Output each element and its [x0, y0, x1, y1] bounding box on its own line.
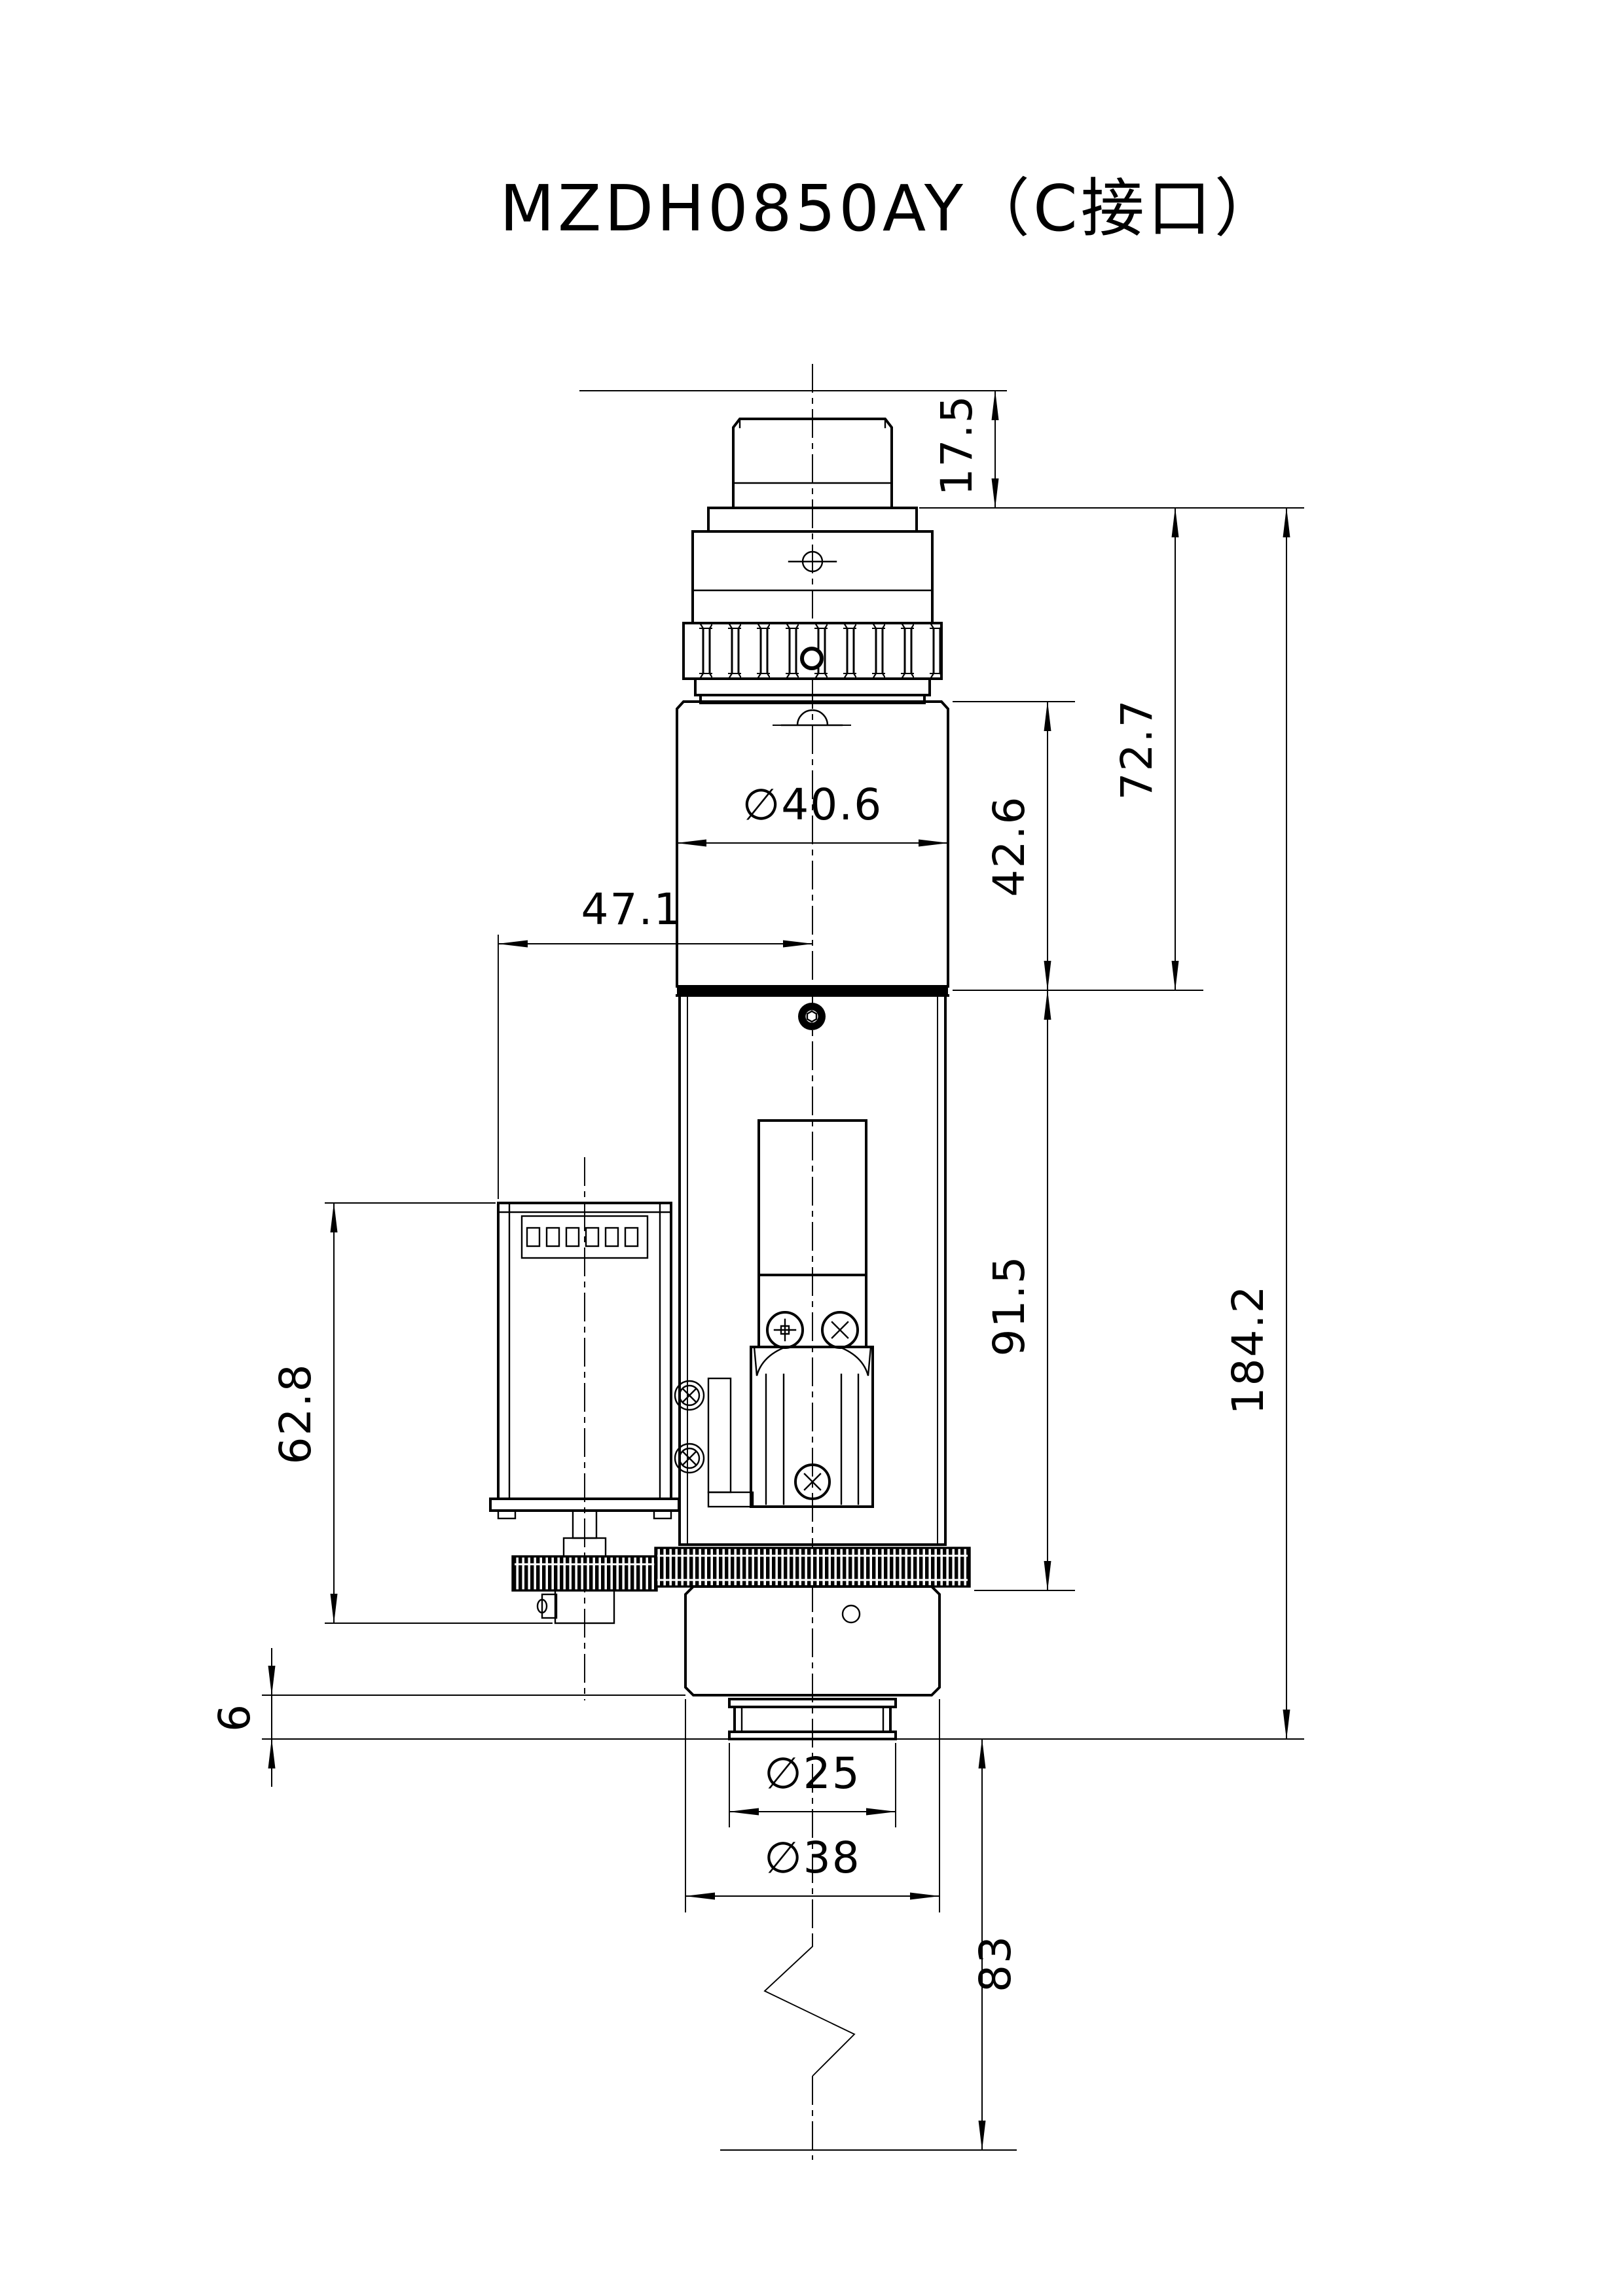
bracket-screw-icon [675, 1444, 704, 1473]
ring-hole-icon [802, 649, 822, 668]
dim-label-total-length: 184.2 [1223, 1285, 1273, 1415]
socket-screw-icon [798, 1003, 826, 1030]
dim-label-lower-length: 91.5 [984, 1255, 1034, 1357]
dim-label-tip-dia-outer: ∅38 [764, 1833, 860, 1883]
dim-label-upper-length: 72.7 [1112, 699, 1162, 800]
focus-knurl-ring [684, 623, 941, 679]
dim-label-barrel-dia: ∅40.6 [742, 780, 883, 830]
dim-label-motor-offset: 47.1 [581, 884, 683, 935]
pinion-gear [513, 1556, 657, 1590]
dim-label-tip-step: 6 [210, 1703, 260, 1732]
dim-label-motor-length: 62.8 [270, 1363, 321, 1465]
junction-band [677, 986, 948, 996]
drawing-title: MZDH0850AY（C接口） [500, 171, 1281, 245]
sheet-background [0, 0, 1623, 2296]
bracket-screw-icon [675, 1381, 704, 1410]
dim-label-working-distance: 83 [970, 1935, 1021, 1992]
dim-label-barrel-length: 42.6 [984, 796, 1034, 897]
dim-label-flange-focal: 17.5 [932, 395, 982, 496]
drawing-sheet: MZDH0850AY（C接口） [0, 0, 1623, 2296]
dim-label-tip-dia-inner: ∅25 [764, 1748, 860, 1799]
